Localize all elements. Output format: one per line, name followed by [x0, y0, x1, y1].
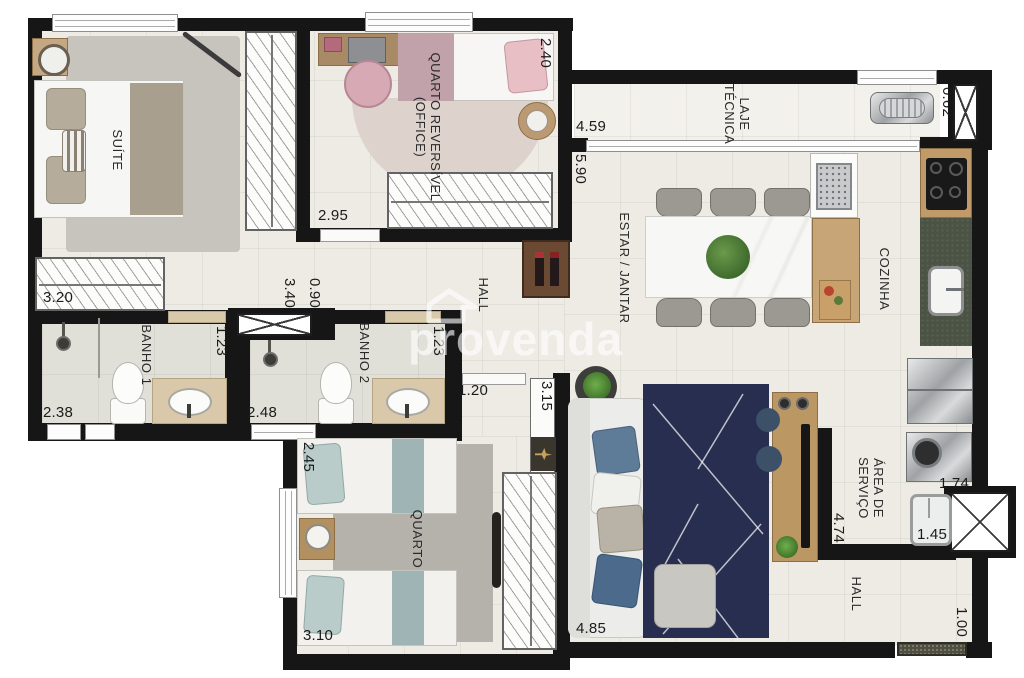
label-quarto-reversivel: QUARTO REVERSÍVEL (OFFICE) — [413, 52, 443, 202]
dim-qr-w: 2.95 — [303, 208, 363, 224]
suite-pillow-1 — [46, 88, 86, 130]
dim-armario-l: 3.15 — [538, 366, 554, 426]
dining-centerpiece-plant — [706, 235, 750, 279]
label-banho2: BANHO 2 — [356, 283, 372, 423]
window-laje-top — [857, 70, 937, 85]
tanque-divider — [928, 498, 930, 518]
living-ottoman — [654, 564, 716, 628]
dining-chair-5 — [710, 298, 756, 327]
window-suite — [52, 14, 178, 32]
label-laje-tecnica: LAJE TÉCNICA — [722, 39, 752, 189]
cooktop-burner-2 — [949, 162, 963, 176]
wall-right-main — [972, 146, 988, 492]
shaft-banhos — [237, 313, 312, 336]
fridge — [907, 358, 973, 424]
quarto-closet — [502, 472, 557, 650]
living-stool-1 — [756, 408, 780, 432]
label-quarto: QUARTO — [409, 469, 425, 609]
window-quarto — [279, 488, 297, 598]
floor-plan: SUÍTE QUARTO REVERSÍVEL (OFFICE) LAJE TÉ… — [0, 0, 1024, 678]
hall-bottle-2 — [550, 252, 559, 286]
dining-chair-3 — [764, 188, 810, 217]
suite-pillow-striped — [62, 130, 86, 172]
cooktop-burner-3 — [930, 186, 943, 199]
dim-servico-w: 1.74 — [924, 476, 984, 492]
dim-tanque-w: 1.45 — [902, 527, 962, 543]
buffet-tray-food2 — [834, 296, 843, 305]
dim-suite-w: 3.20 — [28, 290, 88, 306]
wall-bottom-estar — [558, 642, 895, 658]
dining-chair-6 — [764, 298, 810, 327]
dining-chair-2 — [710, 188, 756, 217]
shaft-elevador — [950, 492, 1010, 552]
qr-desk-item — [324, 37, 342, 52]
hall-bottle-1 — [535, 252, 544, 286]
sofa-pillow-taupe — [596, 504, 646, 554]
quarto-guitar — [492, 512, 501, 588]
wall-laje-top-left — [558, 70, 857, 84]
cooktop-burner-4 — [949, 186, 961, 198]
dim-banho2-w: 2.48 — [232, 405, 292, 421]
cooktop-burner-1 — [930, 162, 942, 174]
label-banho1: BANHO 1 — [138, 285, 154, 425]
banho2-shower-head — [263, 352, 278, 367]
quarto-lamp — [305, 524, 331, 550]
dim-banho1-d: 1.23 — [213, 311, 229, 371]
laje-ac-grille — [879, 98, 925, 118]
qr-chair — [344, 60, 392, 108]
hall-bar-cabinet — [522, 240, 570, 298]
console-speaker-2 — [796, 397, 809, 410]
wall-quarto-bottom — [283, 654, 570, 670]
window-quarto-reversivel — [365, 12, 473, 32]
tv-screen — [801, 424, 810, 548]
dim-servico-d: 4.74 — [830, 498, 846, 558]
label-suite: SUÍTE — [109, 80, 125, 220]
dining-chair-4 — [656, 298, 702, 327]
dim-suite-d: 3.40 — [281, 263, 297, 323]
dining-chair-1 — [656, 188, 702, 217]
console-plant — [776, 536, 798, 558]
dim-laje-w: 0.62 — [939, 72, 955, 132]
living-plant-leaves — [583, 372, 611, 400]
shaft-laje — [953, 84, 978, 141]
sofa-pillow-blue-1 — [591, 425, 641, 477]
suite-bed-blanket — [130, 83, 183, 215]
suite-closet-side — [245, 31, 297, 231]
label-hall-entrada: HALL — [848, 524, 864, 664]
buffet-tray-food — [824, 286, 834, 296]
window-estar-laje — [586, 140, 920, 152]
window-banho1-b — [85, 424, 115, 440]
wall-bottom-corner — [966, 642, 992, 658]
banho1-faucet — [187, 404, 191, 418]
kitchen-sink — [928, 266, 964, 316]
fridge-divider — [907, 389, 973, 391]
dim-quarto-w: 3.10 — [288, 628, 348, 644]
suite-lamp — [38, 44, 70, 76]
dim-hall-pass: 0.90 — [306, 263, 322, 323]
banho2-faucet — [405, 404, 409, 418]
dim-estar-w: 4.85 — [561, 621, 621, 637]
console-speaker-1 — [778, 397, 791, 410]
dim-qr-d: 2.40 — [537, 23, 553, 83]
dim-quarto-d: 2.45 — [300, 427, 316, 487]
dim-hall-w: 1.00 — [953, 592, 969, 652]
grill-churrasqueira — [816, 163, 852, 210]
dim-banho1-w: 2.38 — [28, 405, 88, 421]
qr-side-table-top — [526, 110, 548, 132]
watermark-text: provenda — [408, 312, 623, 366]
dim-corredor-w: 1.20 — [443, 383, 503, 399]
banho1-shower-head — [56, 336, 71, 351]
qr-closet — [387, 172, 553, 229]
sofa-backrest — [568, 398, 590, 638]
kitchen-faucet — [946, 288, 964, 291]
dim-estar-d: 5.90 — [572, 139, 588, 199]
sofa-pillow-blue-2 — [591, 553, 644, 609]
banho1-shower-glass — [98, 318, 100, 378]
banho2-toilet-bowl — [320, 362, 352, 404]
living-stool-2 — [756, 446, 782, 472]
window-banho1-a — [47, 424, 81, 440]
door-quarto-reversivel — [320, 229, 380, 242]
dim-laje-l: 4.59 — [561, 119, 621, 135]
washer-door — [912, 438, 942, 468]
label-cozinha: COZINHA — [876, 209, 892, 349]
